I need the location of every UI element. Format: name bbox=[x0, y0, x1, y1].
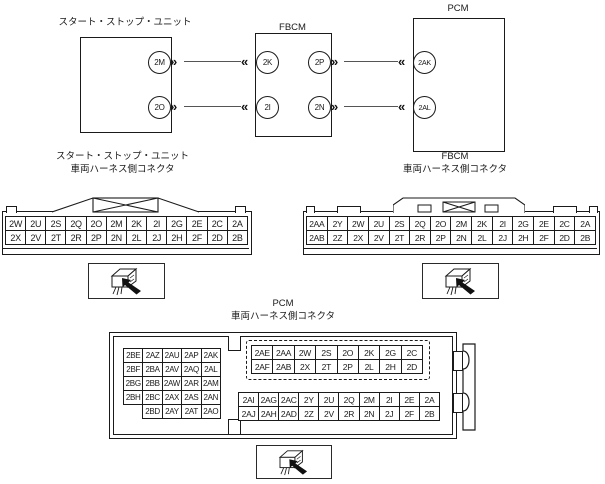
pin-cell: 2X bbox=[6, 231, 26, 245]
chevron-in-icon: « bbox=[241, 101, 247, 113]
fbcm-connector-title: FBCM 車両ハーネス側コネクタ bbox=[345, 150, 565, 176]
pin-cell: 2AY bbox=[162, 405, 181, 419]
pin-cell: 2K bbox=[472, 217, 493, 231]
chevron-out-icon: » bbox=[331, 56, 337, 68]
pin-cell: 2P bbox=[337, 360, 358, 374]
pin-cell: 2F bbox=[187, 231, 207, 245]
pin-cell: 2S bbox=[46, 217, 66, 231]
pcm-left-pin-grid: 2BE2AZ2AU2AP2AK2BF2BA2AV2AQ2AL2BG2BB2AW2… bbox=[123, 348, 221, 419]
pin-cell: 2D bbox=[401, 360, 422, 374]
ss-connector-title: スタート・ストップ・ユニット 車両ハーネス側コネクタ bbox=[10, 150, 235, 176]
connector-pin-row: 2AE2AA2W2S2O2K2G2C bbox=[252, 346, 423, 360]
pin-cell: 2Y bbox=[299, 393, 319, 407]
connector-pin-row: 2BF2BA2AV2AQ2AL bbox=[124, 363, 221, 377]
pin-circle-2n: 2N bbox=[308, 96, 331, 119]
pin-cell: 2AT bbox=[182, 405, 201, 419]
pin-cell: 2I bbox=[379, 393, 399, 407]
pin-cell: 2Q bbox=[410, 217, 431, 231]
pin-cell: 2V bbox=[26, 231, 46, 245]
pin-cell: 2O bbox=[86, 217, 106, 231]
pin-cell: 2M bbox=[451, 217, 472, 231]
connector-pin-row: 2AF2AB2X2T2P2L2H2D bbox=[252, 360, 423, 374]
pin-cell: 2Q bbox=[66, 217, 86, 231]
pin-cell: 2N bbox=[451, 231, 472, 245]
fbcm-connector-title-line2: 車両ハーネス側コネクタ bbox=[345, 163, 565, 176]
fbcm-connector-latch-tab bbox=[553, 206, 577, 213]
pin-cell: 2AQ bbox=[182, 363, 201, 377]
pin-cell: 2P bbox=[86, 231, 106, 245]
connector-view-icon bbox=[267, 448, 321, 476]
pin-cell: 2AA bbox=[307, 217, 328, 231]
pin-cell: 2J bbox=[147, 231, 167, 245]
pin-cell: 2I bbox=[492, 217, 513, 231]
fbcm-connector-pin-grid: 2AA2Y2W2U2S2Q2O2M2K2I2G2E2C2A2AB2Z2X2V2T… bbox=[306, 216, 596, 245]
pin-circle-2al: 2AL bbox=[413, 96, 436, 119]
pin-cell: 2C bbox=[554, 217, 575, 231]
fbcm-connector-corner-tab bbox=[306, 206, 315, 213]
connector-pin-row: 2AB2Z2X2V2T2R2P2N2L2J2H2F2D2B bbox=[307, 231, 596, 245]
pin-cell: 2AC bbox=[279, 393, 299, 407]
pin-cell: 2AH bbox=[259, 407, 279, 421]
pcm-connector-title-line1: PCM bbox=[173, 297, 393, 310]
pin-cell-empty bbox=[124, 405, 143, 419]
fbcm-connector-latch-outline bbox=[393, 195, 525, 213]
wire-2o-2i bbox=[184, 106, 241, 107]
pin-cell: 2R bbox=[339, 407, 359, 421]
pin-cell: 2A bbox=[227, 217, 247, 231]
pin-cell: 2M bbox=[106, 217, 126, 231]
pin-cell: 2M bbox=[359, 393, 379, 407]
pin-cell: 2J bbox=[492, 231, 513, 245]
pin-cell: 2T bbox=[46, 231, 66, 245]
pcm-top-right-pin-grid: 2AE2AA2W2S2O2K2G2C2AF2AB2X2T2P2L2H2D bbox=[251, 345, 423, 374]
pin-cell: 2D bbox=[207, 231, 227, 245]
pin-cell: 2W bbox=[294, 346, 315, 360]
pin-cell: 2G bbox=[513, 217, 534, 231]
pin-cell: 2P bbox=[430, 231, 451, 245]
pin-cell: 2H bbox=[380, 360, 401, 374]
pin-cell: 2Y bbox=[327, 217, 348, 231]
pcm-mount-rail bbox=[460, 343, 478, 431]
pin-cell: 2W bbox=[348, 217, 369, 231]
pin-circle-2i: 2I bbox=[256, 96, 279, 119]
pin-cell: 2BH bbox=[124, 391, 143, 405]
pin-cell: 2F bbox=[399, 407, 419, 421]
connector-pin-row: 2BH2BC2AX2AS2AN bbox=[124, 391, 221, 405]
fbcm-connector-housing-line bbox=[304, 248, 597, 249]
pin-cell: 2AL bbox=[201, 363, 220, 377]
pin-cell: 2AG bbox=[259, 393, 279, 407]
pin-cell: 2AB bbox=[307, 231, 328, 245]
pin-cell: 2AI bbox=[239, 393, 259, 407]
pin-cell: 2O bbox=[337, 346, 358, 360]
pin-cell: 2BB bbox=[143, 377, 162, 391]
pin-cell: 2S bbox=[389, 217, 410, 231]
connector-pin-row: 2AI2AG2AC2Y2U2Q2M2I2E2A bbox=[239, 393, 440, 407]
pin-cell: 2U bbox=[319, 393, 339, 407]
pin-cell: 2O bbox=[430, 217, 451, 231]
connector-pin-row: 2AA2Y2W2U2S2Q2O2M2K2I2G2E2C2A bbox=[307, 217, 596, 231]
pcm-keyway-slot bbox=[228, 419, 241, 434]
pin-cell: 2I bbox=[147, 217, 167, 231]
pin-cell: 2W bbox=[6, 217, 26, 231]
pin-cell: 2AO bbox=[201, 405, 220, 419]
wire-2n-2al bbox=[344, 106, 398, 107]
pin-cell: 2E bbox=[534, 217, 555, 231]
ss-connector-title-line1: スタート・ストップ・ユニット bbox=[10, 150, 235, 163]
pin-cell: 2Z bbox=[327, 231, 348, 245]
pin-cell: 2AD bbox=[279, 407, 299, 421]
pin-cell: 2K bbox=[126, 217, 146, 231]
pin-cell: 2BF bbox=[124, 363, 143, 377]
pin-cell: 2L bbox=[358, 360, 379, 374]
ss-connector-pin-grid: 2W2U2S2Q2O2M2K2I2G2E2C2A2X2V2T2R2P2N2L2J… bbox=[5, 216, 248, 245]
pin-cell: 2D bbox=[554, 231, 575, 245]
connector-pin-row: 2BE2AZ2AU2AP2AK bbox=[124, 349, 221, 363]
pcm-label: PCM bbox=[413, 2, 503, 15]
pin-cell: 2AX bbox=[162, 391, 181, 405]
pin-circle-2k: 2K bbox=[256, 51, 279, 74]
chevron-in-icon: « bbox=[398, 101, 404, 113]
pin-circle-2o: 2O bbox=[148, 96, 171, 119]
pin-cell: 2U bbox=[26, 217, 46, 231]
pin-cell: 2C bbox=[207, 217, 227, 231]
pin-cell: 2Z bbox=[299, 407, 319, 421]
start-stop-unit-label: スタート・ストップ・ユニット bbox=[30, 16, 220, 29]
pcm-connector-title: PCM 車両ハーネス側コネクタ bbox=[173, 297, 393, 323]
pin-cell: 2A bbox=[419, 393, 439, 407]
pin-cell: 2AK bbox=[201, 349, 220, 363]
pin-cell: 2N bbox=[359, 407, 379, 421]
connector-pin-row: 2BG2BB2AW2AR2AM bbox=[124, 377, 221, 391]
pin-cell: 2B bbox=[419, 407, 439, 421]
pin-cell: 2AA bbox=[273, 346, 294, 360]
pin-cell: 2G bbox=[380, 346, 401, 360]
pin-cell: 2AR bbox=[182, 377, 201, 391]
pcm-box bbox=[413, 18, 505, 152]
pin-cell: 2AS bbox=[182, 391, 201, 405]
pin-cell: 2A bbox=[575, 217, 596, 231]
pin-cell: 2AJ bbox=[239, 407, 259, 421]
pcm-bottom-right-pin-grid: 2AI2AG2AC2Y2U2Q2M2I2E2A2AJ2AH2AD2Z2V2R2N… bbox=[238, 392, 440, 421]
pin-cell: 2BC bbox=[143, 391, 162, 405]
pin-cell: 2B bbox=[575, 231, 596, 245]
pin-cell: 2AB bbox=[273, 360, 294, 374]
pin-cell: 2N bbox=[106, 231, 126, 245]
connector-pin-row: 2X2V2T2R2P2N2L2J2H2F2D2B bbox=[6, 231, 248, 245]
pin-cell: 2AV bbox=[162, 363, 181, 377]
fbcm-connector-corner-tab bbox=[589, 206, 598, 213]
pin-cell: 2K bbox=[358, 346, 379, 360]
pin-cell: 2H bbox=[167, 231, 187, 245]
pcm-keyway-slot bbox=[228, 336, 241, 351]
ss-harness-view-box bbox=[88, 263, 165, 299]
pin-cell: 2R bbox=[66, 231, 86, 245]
connector-pin-row: 2W2U2S2Q2O2M2K2I2G2E2C2A bbox=[6, 217, 248, 231]
wiring-diagram-page: スタート・ストップ・ユニット FBCM PCM » » « « » » « « … bbox=[0, 0, 605, 484]
pin-cell: 2AM bbox=[201, 377, 220, 391]
chevron-in-icon: « bbox=[398, 56, 404, 68]
ss-connector-title-line2: 車両ハーネス側コネクタ bbox=[10, 163, 235, 176]
pin-cell: 2AZ bbox=[143, 349, 162, 363]
pin-cell: 2U bbox=[368, 217, 389, 231]
chevron-in-icon: « bbox=[241, 56, 247, 68]
pin-cell: 2H bbox=[513, 231, 534, 245]
pin-cell: 2V bbox=[368, 231, 389, 245]
pin-cell: 2X bbox=[294, 360, 315, 374]
fbcm-harness-view-box bbox=[422, 263, 499, 299]
pin-cell: 2E bbox=[187, 217, 207, 231]
pin-cell: 2AF bbox=[252, 360, 273, 374]
pin-cell: 2T bbox=[389, 231, 410, 245]
pin-cell: 2AP bbox=[182, 349, 201, 363]
fbcm-connector-latch-tab bbox=[337, 206, 361, 213]
pin-cell: 2BA bbox=[143, 363, 162, 377]
pin-cell: 2BD bbox=[143, 405, 162, 419]
pin-circle-2m: 2M bbox=[148, 51, 171, 74]
pcm-connector-title-line2: 車両ハーネス側コネクタ bbox=[173, 310, 393, 323]
ss-connector-corner-tab bbox=[235, 206, 246, 213]
pin-cell: 2B bbox=[227, 231, 247, 245]
ss-connector-housing-line bbox=[3, 248, 249, 249]
ss-connector-corner-tab bbox=[6, 206, 17, 213]
chevron-out-icon: » bbox=[331, 101, 337, 113]
pin-cell: 2S bbox=[316, 346, 337, 360]
pin-cell: 2BG bbox=[124, 377, 143, 391]
pin-circle-2p: 2P bbox=[308, 51, 331, 74]
pin-cell: 2V bbox=[319, 407, 339, 421]
pin-cell: 2AW bbox=[162, 377, 181, 391]
pin-cell: 2F bbox=[534, 231, 555, 245]
pin-cell: 2L bbox=[472, 231, 493, 245]
fbcm-box bbox=[255, 33, 332, 137]
pin-cell: 2C bbox=[401, 346, 422, 360]
pin-cell: 2AU bbox=[162, 349, 181, 363]
pin-circle-2ak: 2AK bbox=[413, 51, 436, 74]
connector-view-icon bbox=[99, 266, 155, 296]
pin-cell: 2G bbox=[167, 217, 187, 231]
pin-cell: 2R bbox=[410, 231, 431, 245]
pin-cell: 2AE bbox=[252, 346, 273, 360]
pin-cell: 2BE bbox=[124, 349, 143, 363]
pin-cell: 2T bbox=[316, 360, 337, 374]
pin-cell: 2Q bbox=[339, 393, 359, 407]
pin-cell: 2J bbox=[379, 407, 399, 421]
wire-2p-2ak bbox=[344, 61, 398, 62]
pin-cell: 2E bbox=[399, 393, 419, 407]
ss-connector-latch-outline bbox=[52, 195, 202, 213]
pin-cell: 2X bbox=[348, 231, 369, 245]
pin-cell: 2L bbox=[126, 231, 146, 245]
pcm-harness-view-box bbox=[256, 445, 332, 479]
connector-pin-row: 2BD2AY2AT2AO bbox=[124, 405, 221, 419]
pin-cell: 2AN bbox=[201, 391, 220, 405]
connector-pin-row: 2AJ2AH2AD2Z2V2R2N2J2F2B bbox=[239, 407, 440, 421]
connector-view-icon bbox=[433, 266, 489, 296]
wire-2m-2k bbox=[184, 61, 241, 62]
